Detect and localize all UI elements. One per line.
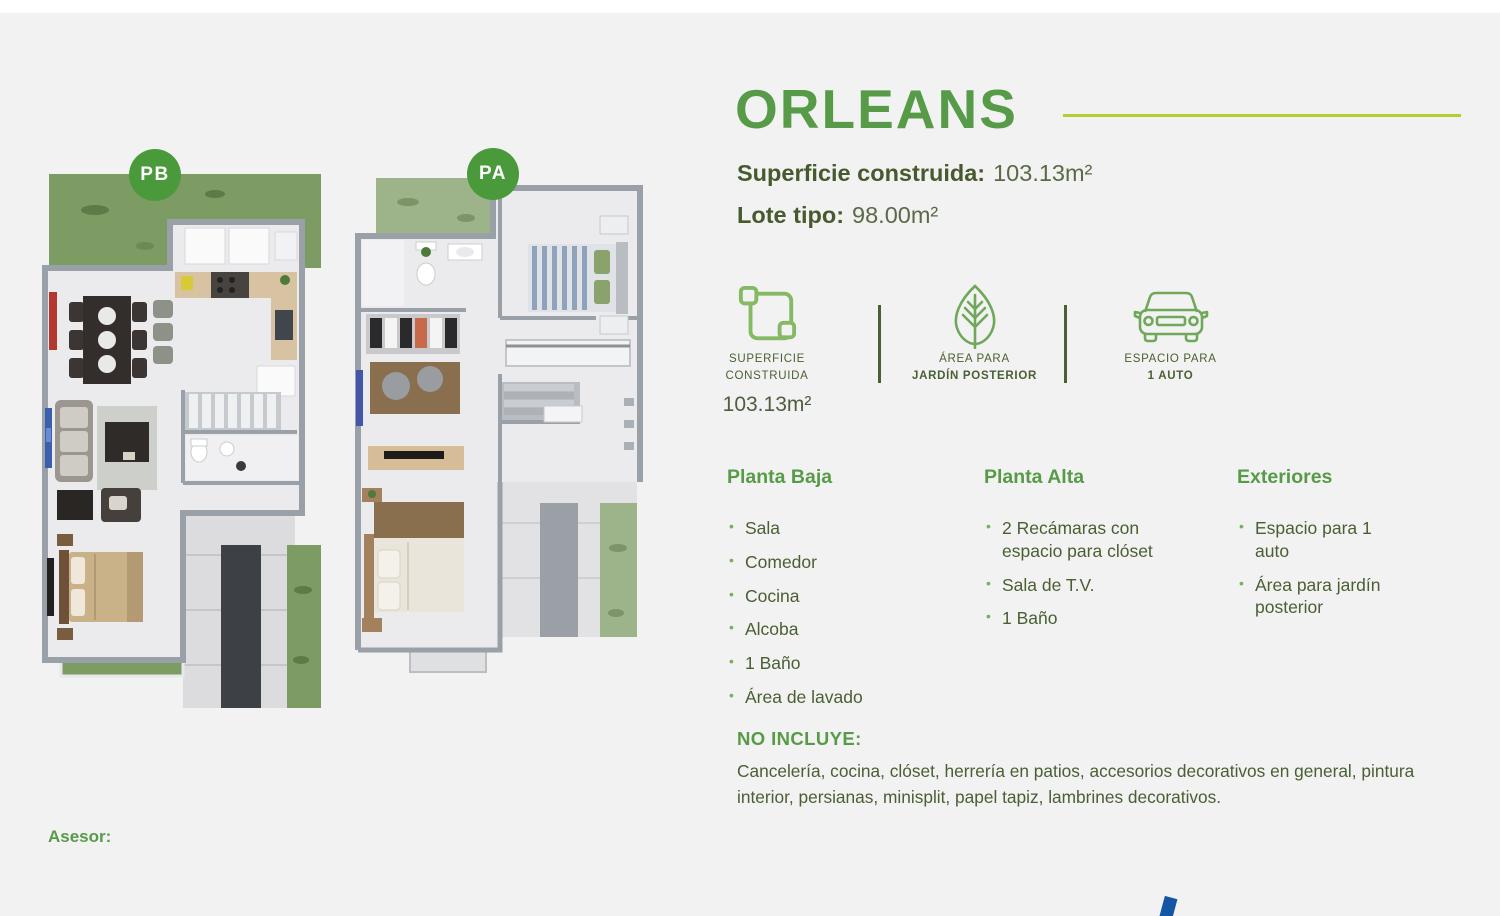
planta-alta-list: 2 Recámaras con espacio para clóset Sala…	[984, 517, 1162, 630]
pb-badge-label: PB	[140, 164, 169, 186]
feature-auto-line2: 1 AUTO	[1148, 368, 1194, 385]
list-item: Área de lavado	[727, 686, 942, 709]
list-item: Espacio para 1 auto	[1237, 517, 1409, 563]
exteriores-list: Espacio para 1 auto Área para jardín pos…	[1237, 517, 1409, 619]
pb-badge: PB	[129, 149, 181, 201]
planta-alta-title: Planta Alta	[984, 466, 1162, 489]
feature-auto-line1: ESPACIO PARA	[1124, 351, 1216, 368]
list-item: 1 Baño	[984, 607, 1162, 630]
column-exteriores: Exteriores Espacio para 1 auto Área para…	[1237, 466, 1409, 630]
feature-auto: ESPACIO PARA 1 AUTO	[1088, 281, 1253, 384]
feature-jardin: ÁREA PARA JARDÍN POSTERIOR	[892, 281, 1057, 384]
feature-jardin-line1: ÁREA PARA	[939, 351, 1010, 368]
planta-baja-list: Sala Comedor Cocina Alcoba 1 Baño Área d…	[727, 517, 942, 709]
column-planta-alta: Planta Alta 2 Recámaras con espacio para…	[984, 466, 1162, 641]
superficie-line: Superficie construida:103.13m²	[737, 160, 1092, 187]
feature-divider-1	[878, 305, 881, 383]
list-item: Sala de T.V.	[984, 574, 1162, 597]
leaf-icon	[946, 281, 1004, 351]
list-item: 1 Baño	[727, 652, 942, 675]
list-item: Cocina	[727, 585, 942, 608]
pa-badge-label: PA	[479, 163, 507, 185]
list-item: Comedor	[727, 551, 942, 574]
column-planta-baja: Planta Baja Sala Comedor Cocina Alcoba 1…	[727, 466, 942, 720]
feature-superficie-value: 103.13m²	[723, 393, 812, 417]
superficie-label: Superficie construida:	[737, 160, 985, 186]
page-title: ORLEANS	[735, 82, 1018, 137]
superficie-value: 103.13m²	[993, 160, 1092, 186]
brochure-page: PB	[0, 0, 1500, 916]
lote-value: 98.00m²	[852, 202, 938, 228]
lote-line: Lote tipo:98.00m²	[737, 202, 938, 229]
no-incluye-text: Cancelería, cocina, clóset, herrería en …	[737, 759, 1462, 811]
list-item: Área para jardín posterior	[1237, 574, 1409, 620]
floor-plan-pa	[348, 158, 658, 738]
feature-divider-2	[1064, 305, 1067, 383]
list-item: 2 Recámaras con espacio para clóset	[984, 517, 1162, 563]
list-item: Sala	[727, 517, 942, 540]
asesor-label: Asesor:	[48, 827, 111, 847]
exteriores-title: Exteriores	[1237, 466, 1409, 489]
feature-jardin-line2: JARDÍN POSTERIOR	[912, 368, 1037, 385]
area-icon	[736, 281, 798, 351]
no-incluye-title: NO INCLUYE:	[737, 728, 862, 750]
car-icon	[1133, 281, 1209, 351]
feature-superficie-line2: CONSTRUIDA	[725, 368, 808, 385]
pa-badge: PA	[467, 148, 519, 200]
floor-plan-pb	[35, 160, 335, 720]
planta-baja-title: Planta Baja	[727, 466, 942, 489]
feature-superficie-line1: SUPERFICIE	[729, 351, 805, 368]
feature-superficie: SUPERFICIE CONSTRUIDA 103.13m²	[706, 281, 828, 417]
title-accent-line	[1063, 114, 1461, 117]
lote-label: Lote tipo:	[737, 202, 844, 228]
list-item: Alcoba	[727, 618, 942, 641]
